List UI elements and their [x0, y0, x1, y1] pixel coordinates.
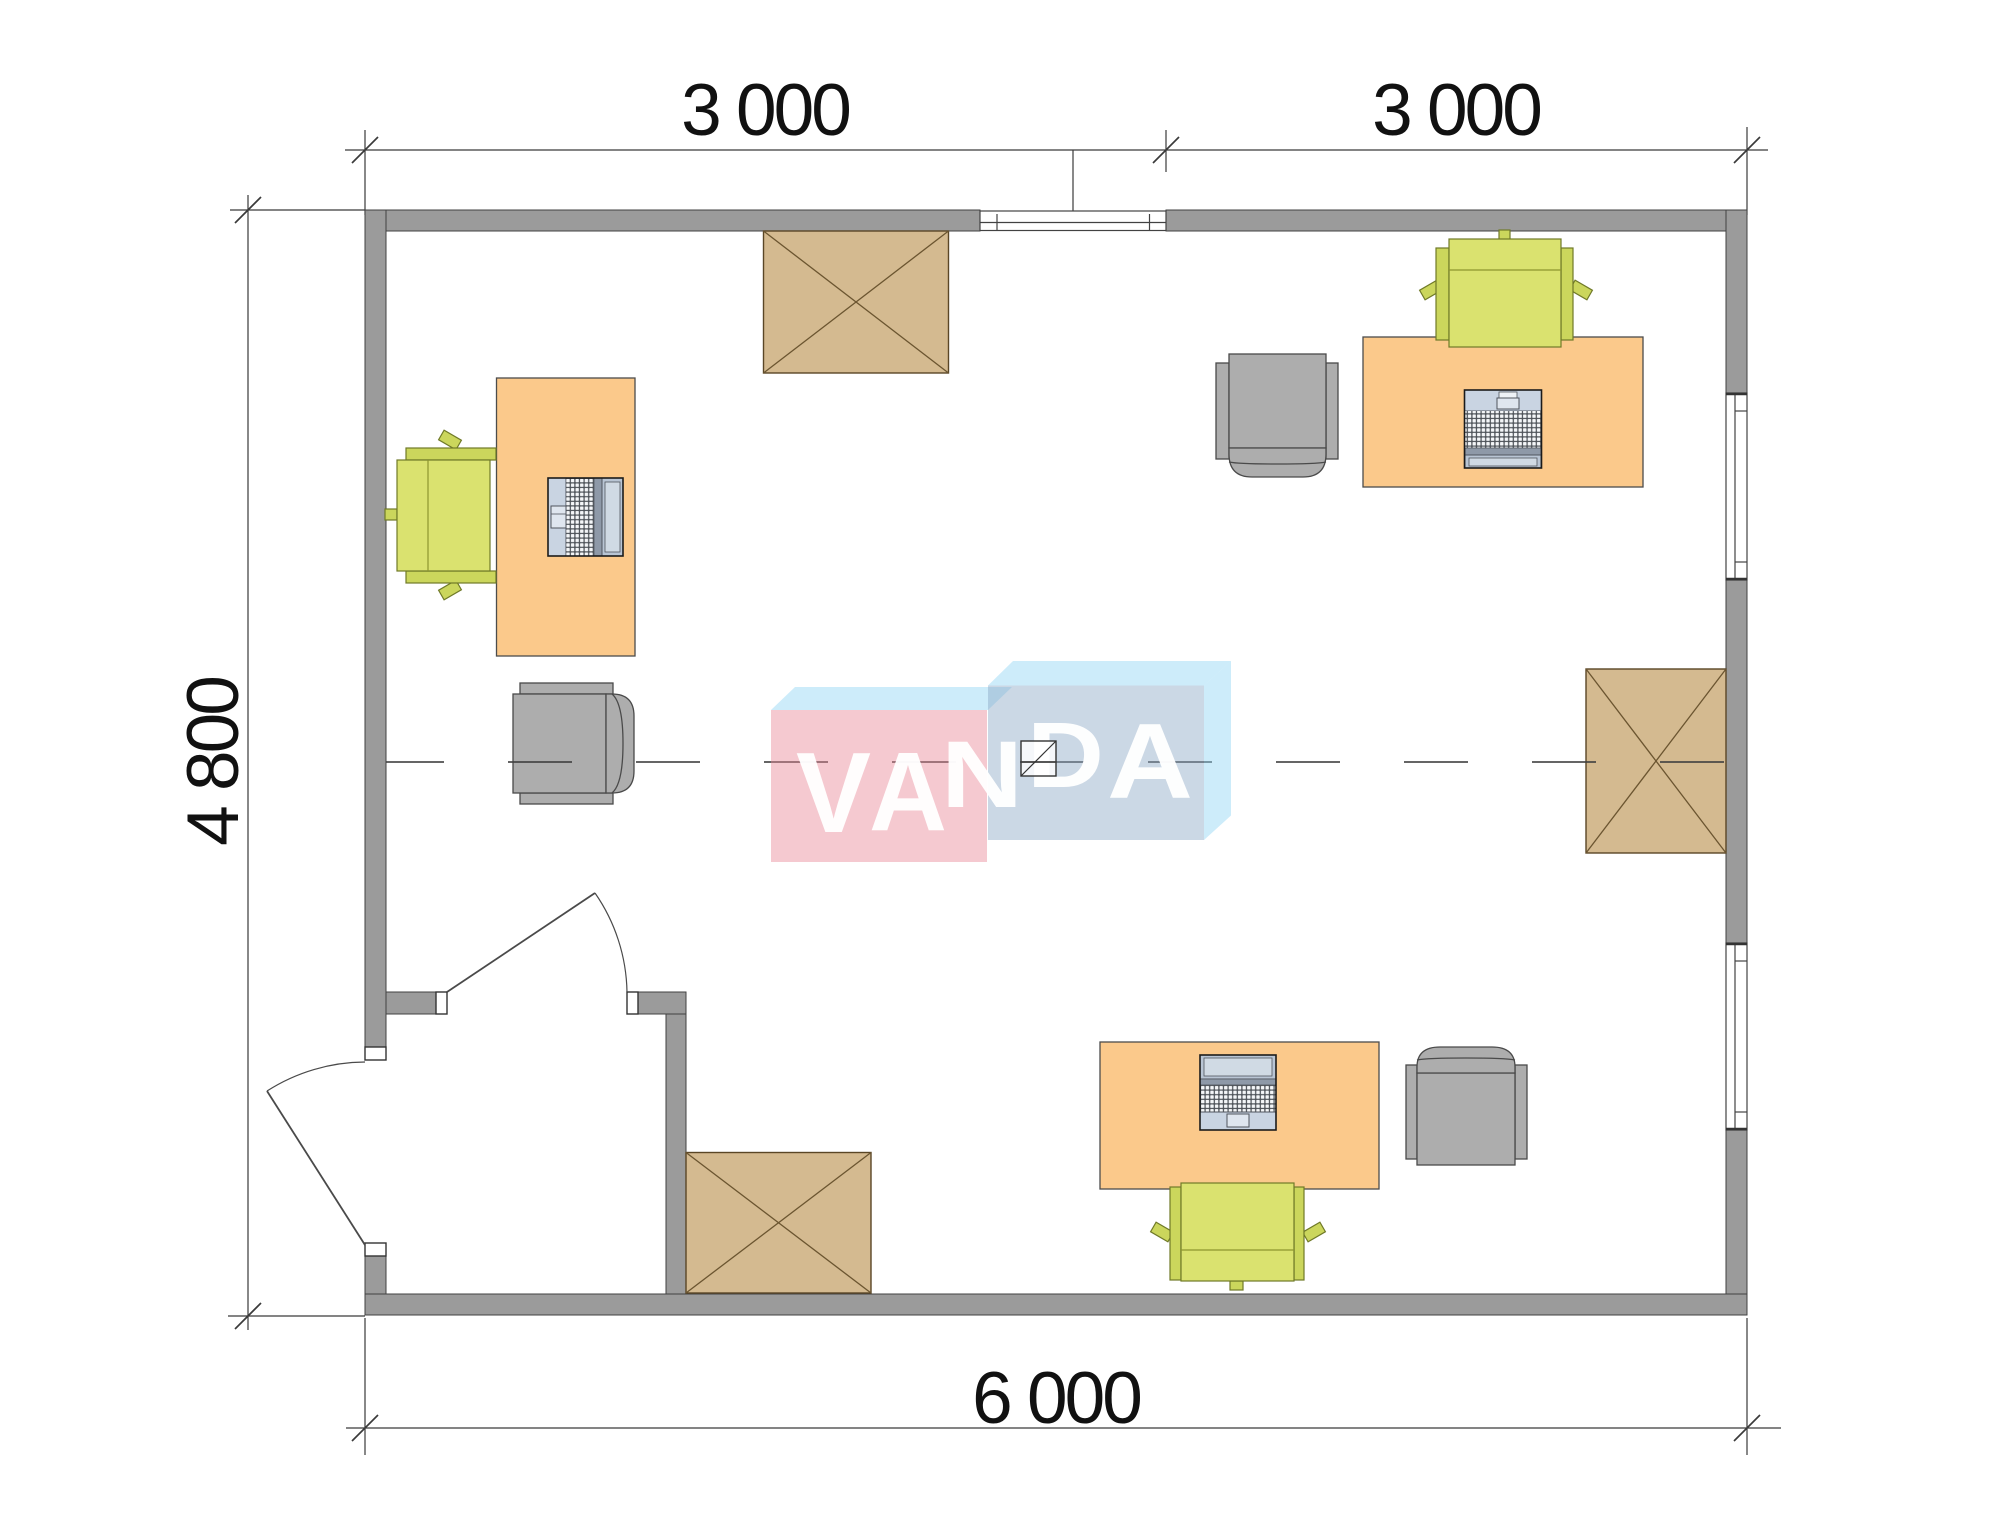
- svg-text:N: N: [941, 722, 1023, 828]
- svg-text:3 000: 3 000: [681, 70, 849, 151]
- svg-text:4 800: 4 800: [173, 678, 254, 846]
- svg-text:6 000: 6 000: [972, 1358, 1140, 1439]
- svg-text:3 000: 3 000: [1372, 70, 1540, 151]
- svg-text:A: A: [869, 730, 947, 855]
- svg-text:A: A: [1107, 701, 1193, 821]
- svg-text:V: V: [796, 730, 871, 857]
